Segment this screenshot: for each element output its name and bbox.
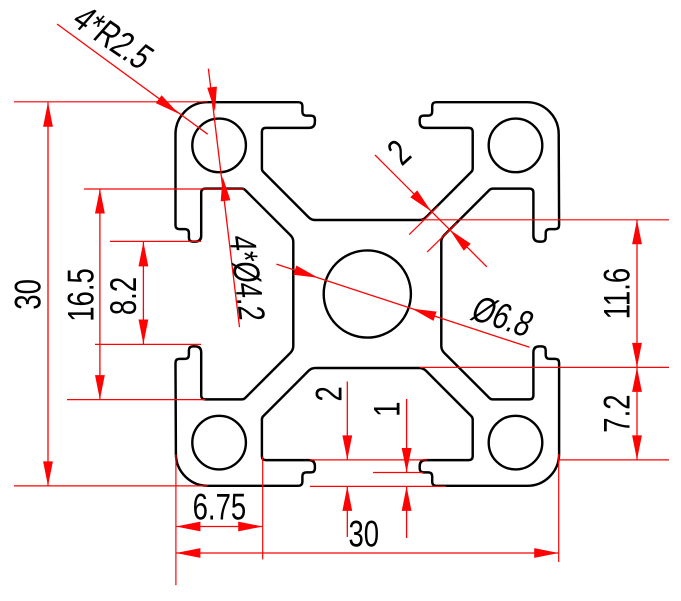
svg-text:8.2: 8.2 <box>102 277 144 315</box>
svg-text:11.6: 11.6 <box>595 268 637 320</box>
svg-text:16.5: 16.5 <box>60 268 102 322</box>
svg-text:2: 2 <box>307 386 349 401</box>
svg-text:1: 1 <box>366 402 408 417</box>
svg-text:30: 30 <box>7 279 49 310</box>
svg-text:6.75: 6.75 <box>193 485 247 527</box>
svg-text:30: 30 <box>348 512 379 554</box>
svg-text:7.2: 7.2 <box>595 394 637 432</box>
